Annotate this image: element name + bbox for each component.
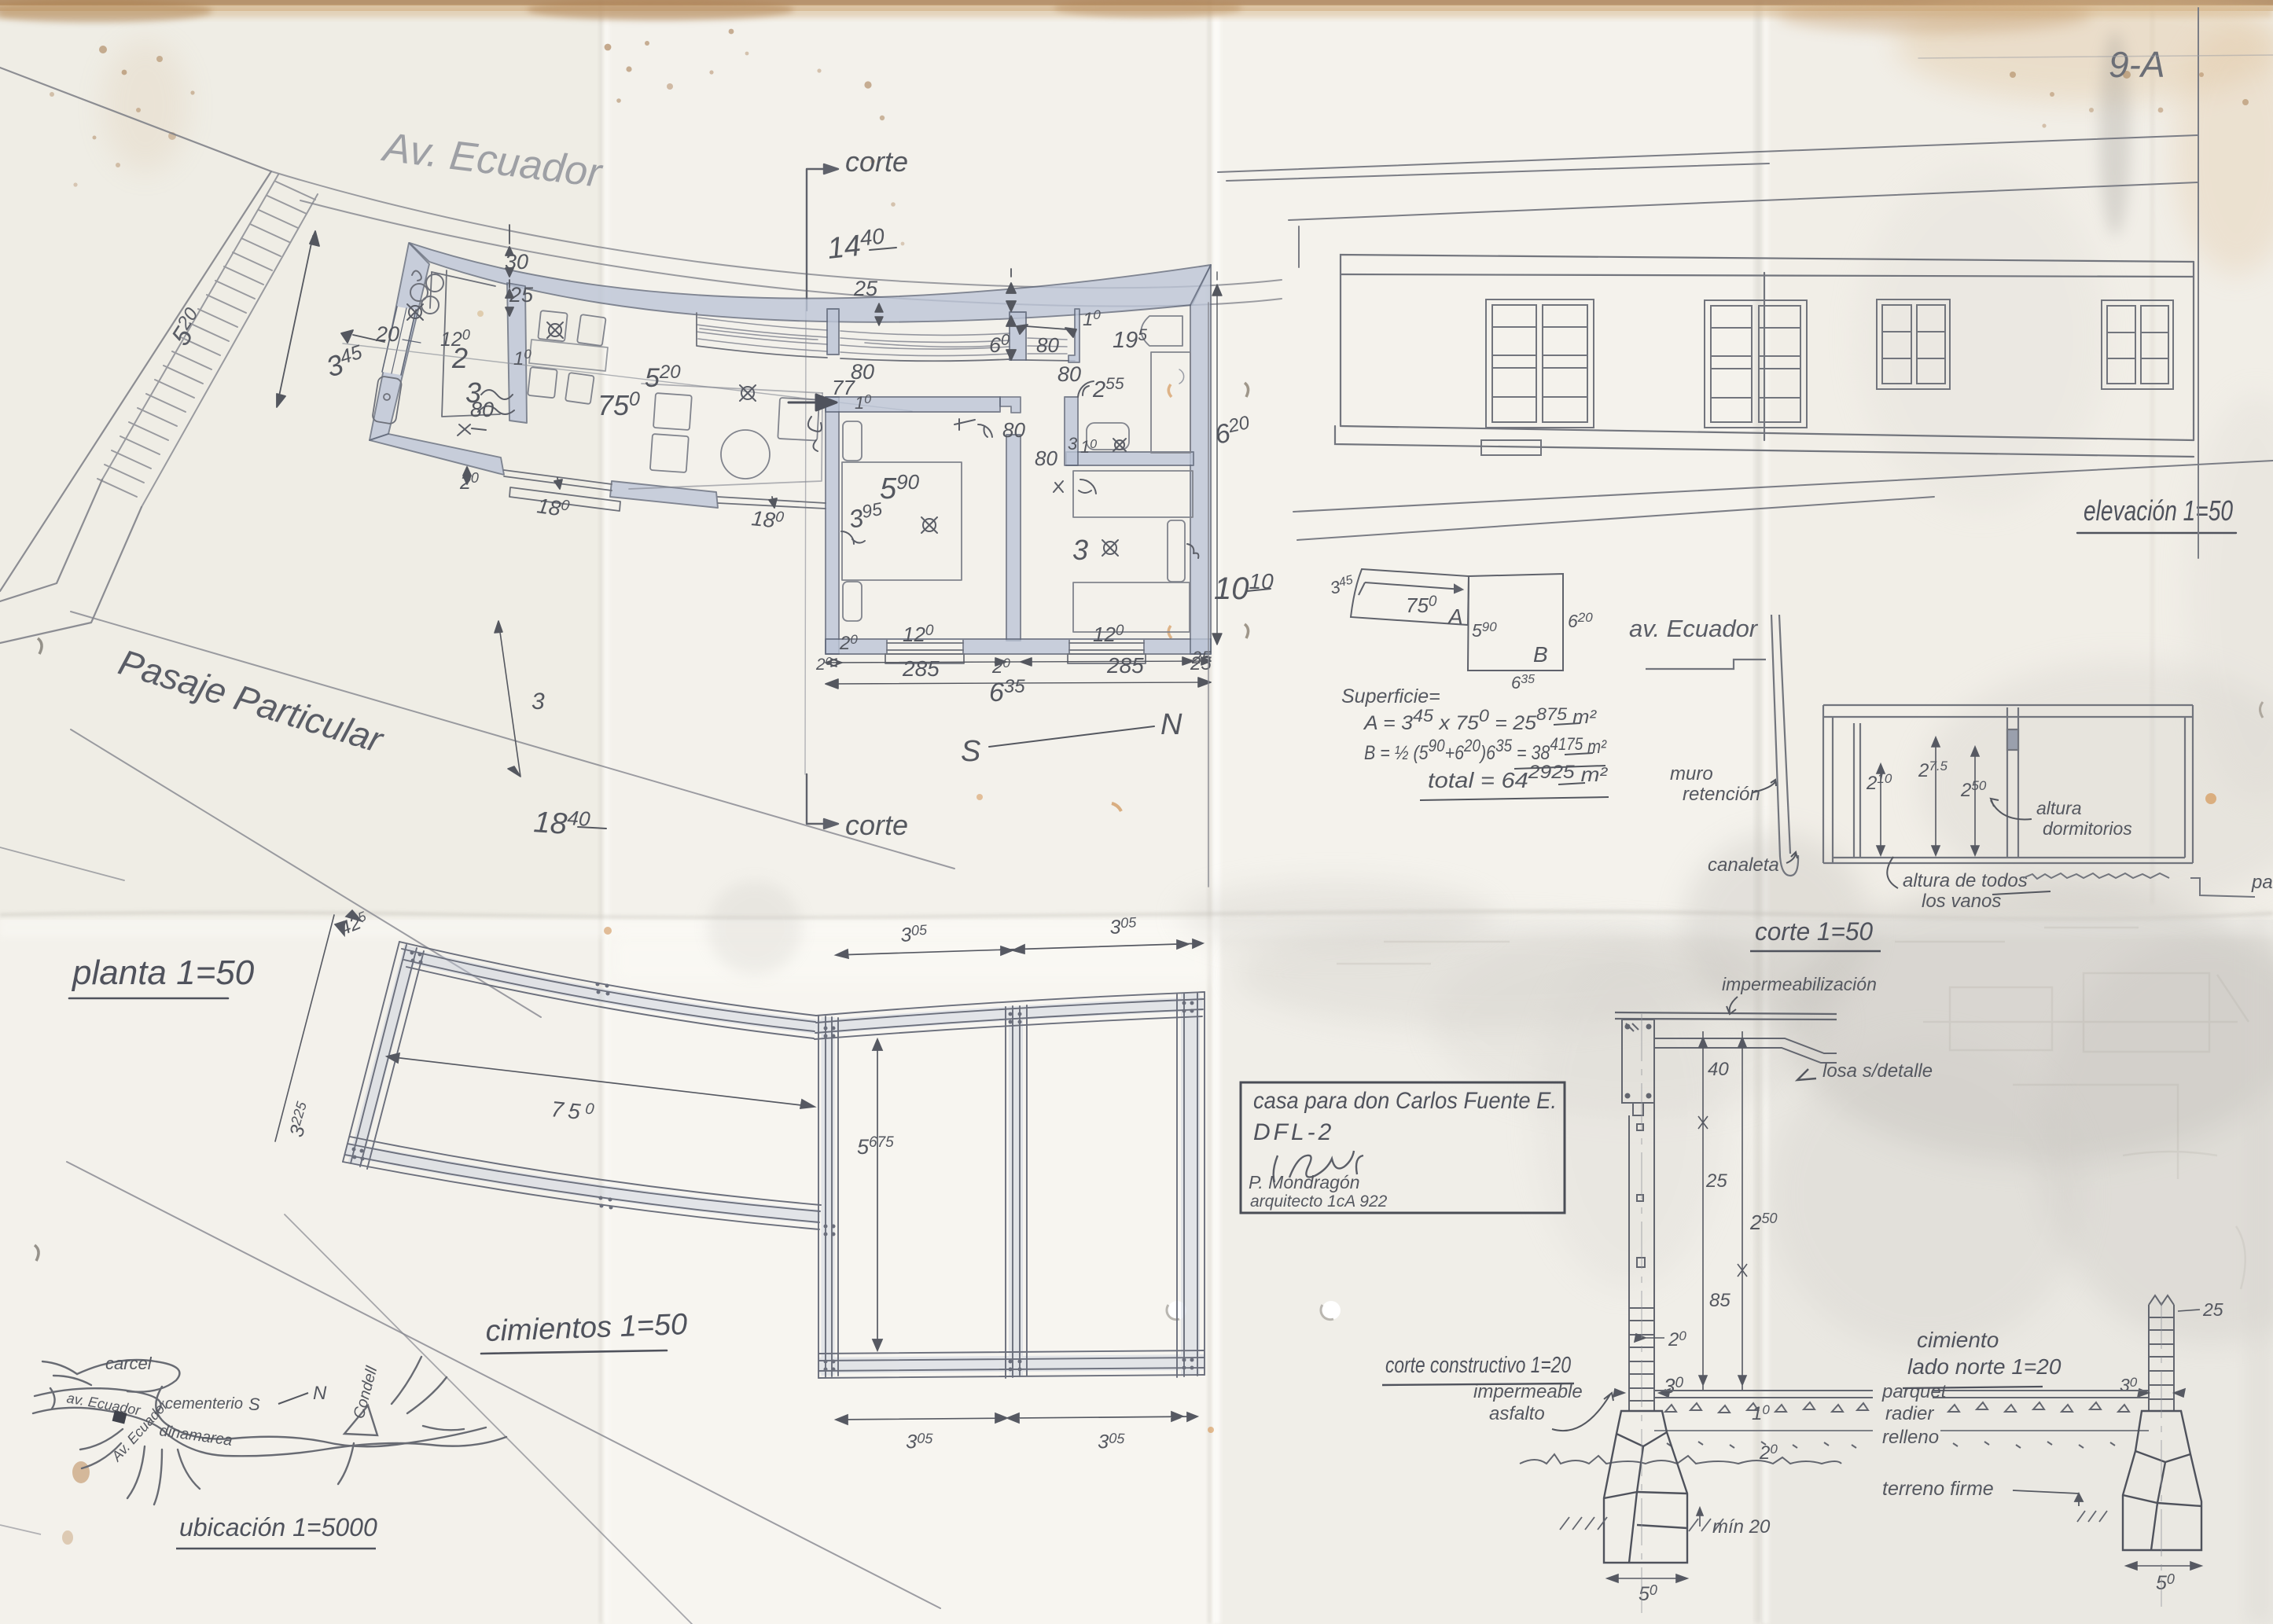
svg-text:2: 2 xyxy=(451,342,468,374)
svg-text:terreno firme: terreno firme xyxy=(1882,1478,1994,1500)
svg-text:20: 20 xyxy=(375,322,399,346)
svg-text:cementerio: cementerio xyxy=(165,1395,243,1413)
svg-text:cimientos 1=50: cimientos 1=50 xyxy=(485,1308,688,1348)
svg-text:av. Ecuador: av. Ecuador xyxy=(1629,615,1759,642)
svg-text:80: 80 xyxy=(1035,446,1057,470)
svg-text:285: 285 xyxy=(902,656,940,681)
svg-text:retención: retención xyxy=(1683,784,1760,805)
svg-text:N: N xyxy=(313,1383,327,1404)
svg-text:muro: muro xyxy=(1670,763,1713,784)
svg-text:corte: corte xyxy=(845,145,908,178)
svg-text:mín 20: mín 20 xyxy=(1712,1516,1771,1538)
svg-text:9-A: 9-A xyxy=(2109,44,2165,85)
svg-text:P. Mondragón: P. Mondragón xyxy=(1249,1172,1360,1192)
svg-text:DFL-2: DFL-2 xyxy=(1253,1119,1334,1145)
svg-text:85: 85 xyxy=(1709,1290,1730,1311)
svg-text:80: 80 xyxy=(1036,333,1059,357)
svg-text:25: 25 xyxy=(1705,1170,1727,1192)
svg-text:corte: corte xyxy=(845,809,908,841)
svg-text:relleno: relleno xyxy=(1882,1427,1939,1448)
svg-text:S: S xyxy=(248,1394,260,1414)
svg-text:carcel: carcel xyxy=(105,1354,153,1373)
svg-text:B: B xyxy=(1533,642,1548,667)
svg-text:Superficie=: Superficie= xyxy=(1341,685,1440,707)
svg-text:3: 3 xyxy=(1072,534,1088,566)
svg-text:40: 40 xyxy=(1708,1059,1729,1080)
svg-text:planta 1=50: planta 1=50 xyxy=(71,953,255,992)
svg-text:A: A xyxy=(1447,604,1463,629)
svg-text:3: 3 xyxy=(1068,434,1078,454)
svg-text:los vanos: los vanos xyxy=(1922,891,2001,912)
svg-text:25: 25 xyxy=(2202,1299,2223,1320)
svg-text:N: N xyxy=(1160,708,1182,741)
svg-text:losa s/detalle: losa s/detalle xyxy=(1822,1060,1933,1082)
svg-text:canaleta: canaleta xyxy=(1708,854,1779,876)
svg-text:casa para don Carlos Fuente E.: casa para don Carlos Fuente E. xyxy=(1253,1088,1557,1114)
svg-text:77: 77 xyxy=(832,376,855,399)
svg-text:dormitorios: dormitorios xyxy=(2043,818,2132,839)
svg-text:corte constructivo 1=20: corte constructivo 1=20 xyxy=(1385,1353,1571,1378)
svg-text:80: 80 xyxy=(470,398,494,421)
svg-text:S: S xyxy=(961,735,980,768)
svg-text:arquitecto 1cA 922: arquitecto 1cA 922 xyxy=(1250,1192,1388,1211)
svg-text:altura: altura xyxy=(2036,798,2082,818)
svg-text:cimiento: cimiento xyxy=(1917,1328,1999,1352)
svg-text:parquet: parquet xyxy=(1881,1381,1947,1402)
svg-text:asfalto: asfalto xyxy=(1489,1403,1545,1424)
svg-text:285: 285 xyxy=(1106,653,1144,678)
svg-text:elevación 1=50: elevación 1=50 xyxy=(2084,494,2233,527)
svg-text:ubicación 1=5000: ubicación 1=5000 xyxy=(179,1513,377,1541)
svg-text:80: 80 xyxy=(1002,418,1025,442)
svg-text:corte 1=50: corte 1=50 xyxy=(1755,917,1873,946)
svg-text:altura de todos: altura de todos xyxy=(1903,870,2028,891)
svg-text:80: 80 xyxy=(1057,362,1081,386)
svg-text:radier: radier xyxy=(1885,1403,1934,1424)
svg-text:lado norte 1=20: lado norte 1=20 xyxy=(1907,1354,2062,1379)
svg-text:3: 3 xyxy=(531,689,545,715)
svg-text:25: 25 xyxy=(853,277,878,300)
svg-text:impermeabilización: impermeabilización xyxy=(1722,974,1877,994)
svg-text:pasaj: pasaj xyxy=(2251,872,2273,893)
